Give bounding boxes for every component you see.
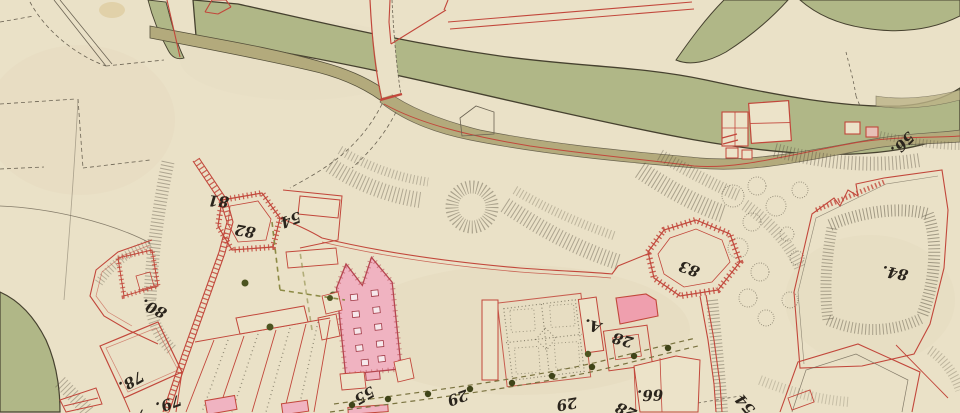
map-canvas[interactable]: 81 82 54 80. 78. 79. 7 55 29 29 A. 28 66…: [0, 0, 960, 413]
garden-west-wing: [482, 300, 498, 380]
outbuilding: [866, 127, 878, 137]
tree: [267, 324, 274, 331]
parcel-82: 82: [233, 220, 257, 241]
outbuilding: [845, 122, 860, 134]
parcel-66: 66.: [637, 386, 664, 405]
tree: [327, 295, 333, 301]
tree: [585, 351, 591, 357]
map-viewport: 81 82 54 80. 78. 79. 7 55 29 29 A. 28 66…: [0, 0, 960, 413]
tree: [242, 280, 249, 287]
parcel-81: 81: [207, 191, 229, 211]
